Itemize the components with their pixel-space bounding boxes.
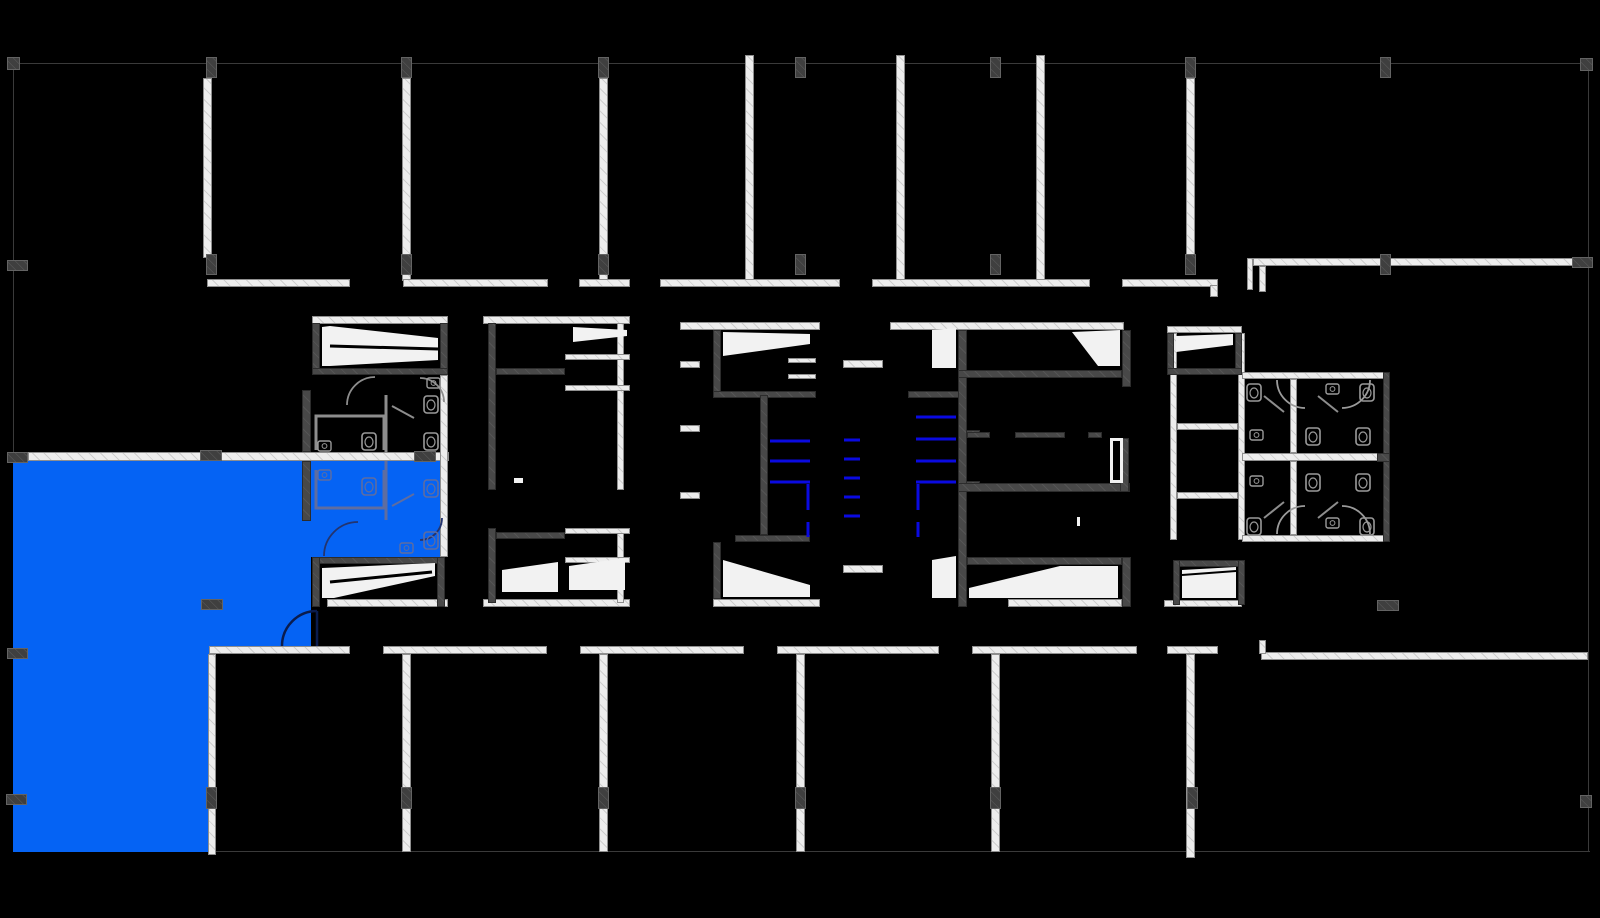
urinal-screen bbox=[1264, 502, 1284, 518]
toilet-icon bbox=[424, 480, 438, 497]
sink-icon bbox=[1250, 476, 1263, 486]
stair-treads bbox=[932, 556, 956, 598]
door-arc bbox=[1277, 380, 1305, 408]
sink-icon bbox=[318, 470, 331, 480]
urinal-screen bbox=[392, 494, 414, 506]
urinal-screen bbox=[392, 406, 414, 418]
urinal-screen bbox=[1264, 396, 1284, 412]
toilet-icon bbox=[1306, 474, 1320, 491]
stair-treads bbox=[502, 562, 558, 592]
sink-icon bbox=[400, 543, 413, 553]
toilet-icon bbox=[1356, 428, 1370, 445]
toilet-icon bbox=[424, 532, 438, 549]
annotation-layer bbox=[0, 0, 1600, 918]
sink-icon bbox=[1250, 430, 1263, 440]
restroom-partition bbox=[316, 470, 384, 508]
toilet-icon bbox=[362, 478, 376, 495]
stair-treads bbox=[573, 327, 627, 342]
door-arc bbox=[1277, 506, 1305, 534]
urinal-screen bbox=[1318, 502, 1338, 518]
stair-treads bbox=[723, 560, 810, 597]
sink-icon bbox=[318, 441, 331, 451]
suite-entry-door-arc bbox=[282, 611, 317, 646]
door-arc bbox=[1342, 506, 1370, 534]
door-arc bbox=[324, 522, 358, 556]
stair-treads bbox=[969, 566, 1118, 598]
sink-icon bbox=[1326, 384, 1339, 394]
door-arc bbox=[347, 377, 375, 405]
stair-treads bbox=[932, 328, 956, 368]
stair-treads bbox=[723, 332, 810, 356]
toilet-icon bbox=[424, 433, 438, 450]
toilet-icon bbox=[1356, 474, 1370, 491]
toilet-icon bbox=[1306, 428, 1320, 445]
stair-treads bbox=[1176, 334, 1233, 352]
stair-treads bbox=[1072, 330, 1120, 366]
sink-icon bbox=[1326, 518, 1339, 528]
toilet-icon bbox=[362, 433, 376, 450]
toilet-icon bbox=[1247, 384, 1261, 401]
urinal-screen bbox=[1318, 396, 1338, 412]
toilet-icon bbox=[424, 396, 438, 413]
floor-plan-canvas bbox=[0, 0, 1600, 918]
toilet-icon bbox=[1247, 518, 1261, 535]
stair-treads bbox=[569, 558, 625, 590]
